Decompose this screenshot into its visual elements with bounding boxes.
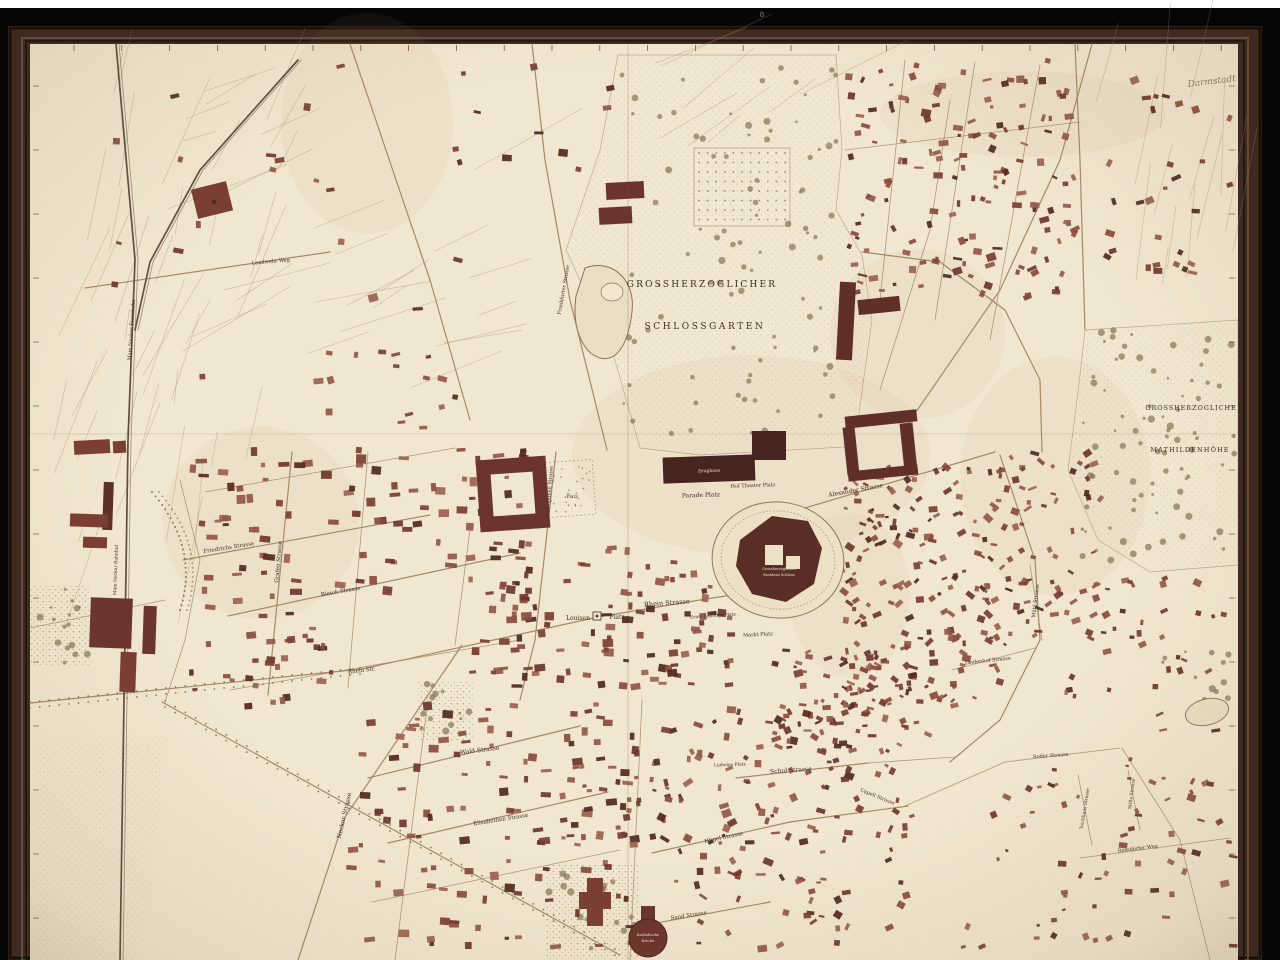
- city-map-canvas: GROSSHERZOGLICHERSCHLOSSGARTENGROSSHERZO…: [0, 0, 1280, 960]
- framed-map-photo: GROSSHERZOGLICHERSCHLOSSGARTENGROSSHERZO…: [0, 0, 1280, 960]
- paper-vignette: [30, 44, 1238, 960]
- white-strip: [0, 0, 1280, 8]
- frame-mark: 8: [760, 11, 764, 19]
